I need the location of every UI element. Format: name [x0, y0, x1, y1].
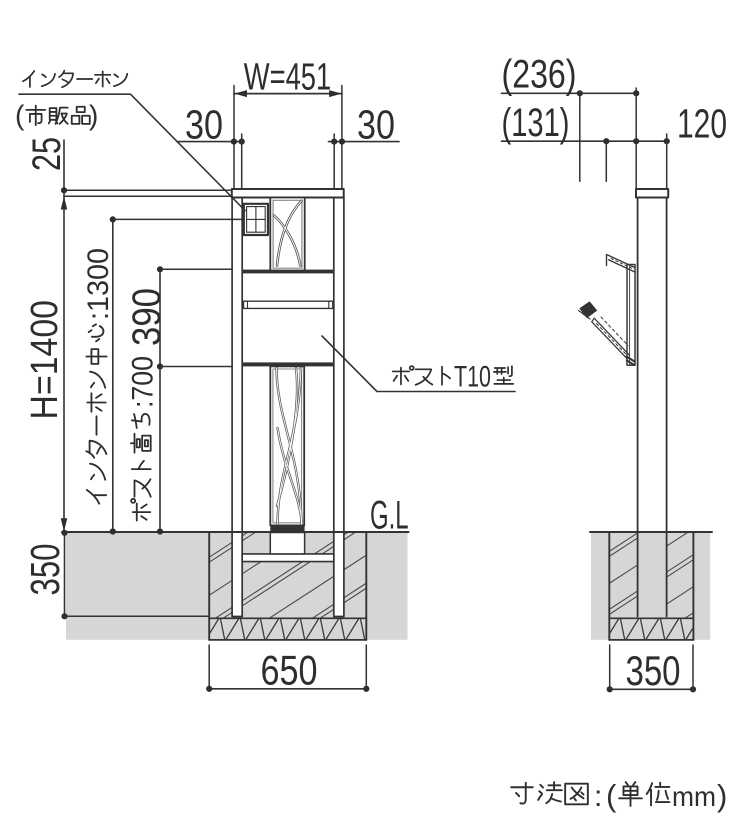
svg-text::700: :700	[126, 356, 159, 408]
svg-text:350: 350	[626, 647, 681, 694]
svg-text:25: 25	[25, 137, 69, 171]
svg-text:): )	[89, 100, 98, 131]
svg-text:W=451: W=451	[244, 56, 332, 98]
svg-text:(: (	[15, 100, 25, 131]
svg-text:G.L: G.L	[370, 494, 409, 538]
svg-text:30: 30	[357, 102, 395, 148]
svg-text:): )	[717, 778, 727, 813]
svg-text:(131): (131)	[502, 101, 570, 145]
svg-text:H=1400: H=1400	[24, 300, 66, 420]
svg-text:650: 650	[261, 647, 318, 694]
svg-text:390: 390	[125, 288, 169, 346]
svg-text::1300: :1300	[82, 248, 115, 320]
svg-text::: :	[594, 780, 602, 813]
svg-text:30: 30	[185, 102, 223, 148]
svg-text:mm: mm	[672, 781, 716, 812]
svg-text:350: 350	[22, 544, 68, 596]
svg-text:(236): (236)	[502, 53, 577, 97]
svg-text:(: (	[606, 778, 617, 813]
svg-text:T10: T10	[454, 361, 491, 394]
svg-text:120: 120	[677, 101, 727, 147]
